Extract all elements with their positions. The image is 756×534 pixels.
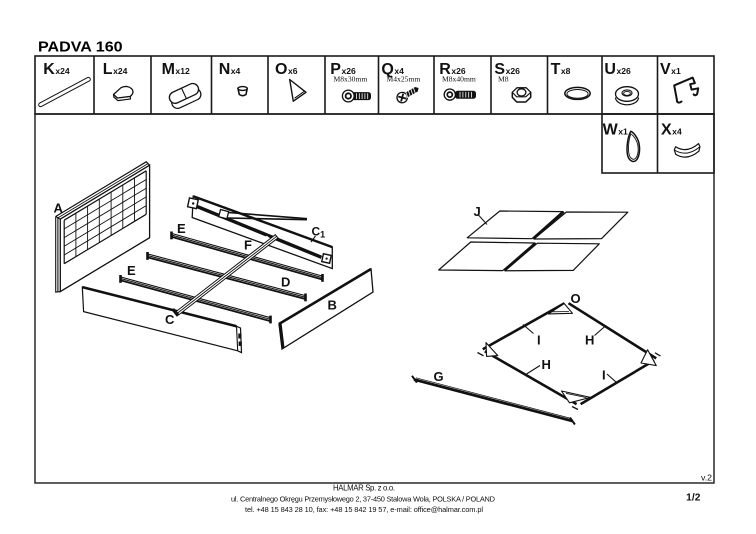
svg-text:ul. Centralnego Okręgu Przemys: ul. Centralnego Okręgu Przemysłowego 2, … (231, 494, 495, 503)
svg-text:C: C (165, 312, 175, 327)
svg-text:M4x25mm: M4x25mm (387, 75, 421, 84)
svg-text:E: E (177, 221, 186, 236)
svg-text:I: I (602, 368, 606, 383)
svg-text:M8: M8 (498, 75, 509, 84)
svg-text:B: B (328, 297, 337, 312)
svg-text:J: J (474, 204, 481, 219)
svg-text:M8x30mm: M8x30mm (334, 75, 368, 84)
svg-text:M8x40mm: M8x40mm (442, 75, 476, 84)
svg-text:I: I (537, 333, 541, 348)
svg-text:v.2: v.2 (701, 472, 712, 482)
svg-text:1/2: 1/2 (686, 493, 701, 504)
svg-text:G: G (434, 369, 444, 384)
svg-text:H: H (585, 333, 594, 348)
svg-text:E: E (127, 263, 136, 278)
svg-text:tel. +48 15 843 28 10, fax: +4: tel. +48 15 843 28 10, fax: +48 15 842 1… (245, 505, 483, 514)
svg-text:PADVA 160: PADVA 160 (38, 39, 123, 55)
svg-text:HALMAR Sp. z o.o.: HALMAR Sp. z o.o. (333, 484, 395, 493)
svg-text:D: D (281, 275, 290, 290)
svg-text:F: F (244, 238, 252, 253)
svg-text:H: H (542, 357, 551, 372)
svg-text:O: O (571, 291, 581, 306)
svg-text:A: A (54, 201, 64, 216)
